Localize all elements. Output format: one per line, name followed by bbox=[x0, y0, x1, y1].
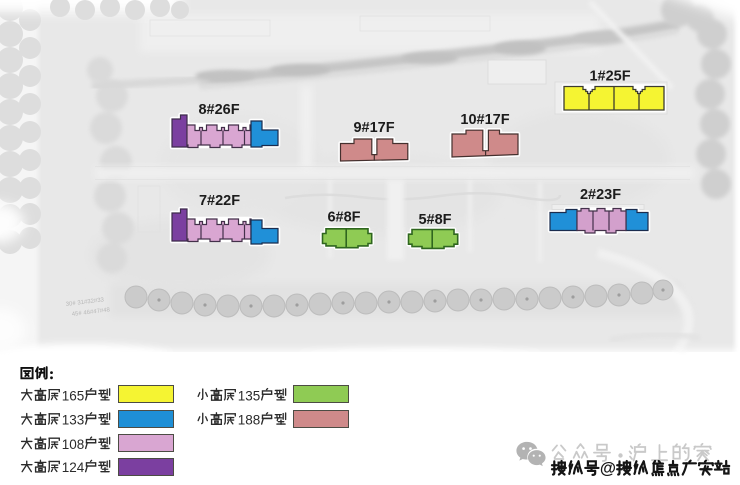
svg-text:124: 124 bbox=[62, 460, 85, 475]
svg-text:188: 188 bbox=[238, 413, 261, 428]
svg-text:135: 135 bbox=[238, 388, 261, 403]
svg-text:@: @ bbox=[600, 460, 616, 478]
svg-text:133: 133 bbox=[62, 413, 85, 428]
svg-text:165: 165 bbox=[62, 388, 85, 403]
svg-text:108: 108 bbox=[62, 437, 85, 452]
